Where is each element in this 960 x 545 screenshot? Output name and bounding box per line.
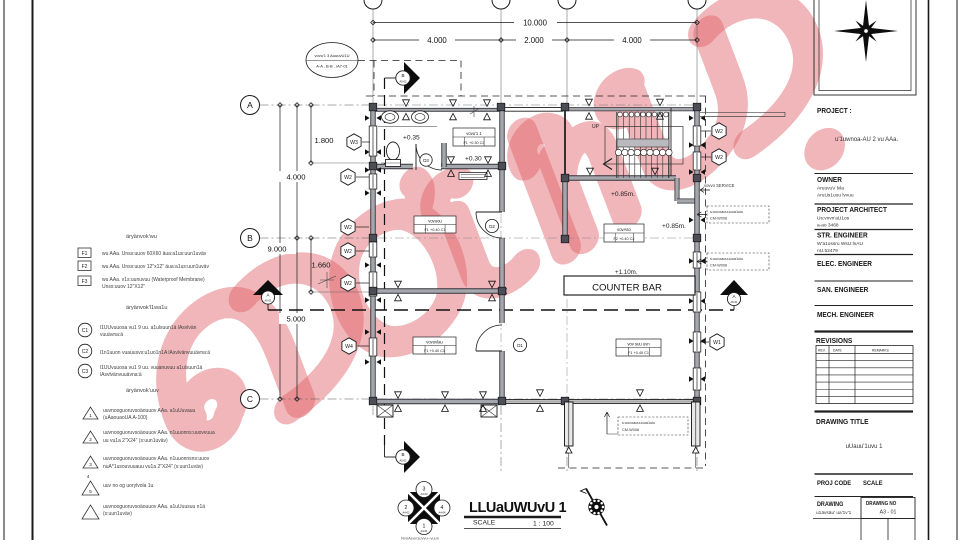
svg-text:nU.52479: nU.52479 — [817, 248, 838, 254]
svg-text:DRAWING NO: DRAWING NO — [866, 501, 896, 507]
svg-text:F1 +0.40 C1: F1 +0.40 C1 — [424, 228, 445, 232]
svg-text:PROJ CODE: PROJ CODE — [817, 480, 851, 487]
svg-text:AruuvuV lvla: AruuvuV lvla — [817, 186, 844, 192]
svg-text:C1: C1 — [82, 328, 89, 334]
svg-text:W4: W4 — [345, 344, 353, 350]
svg-text:CM-W008: CM-W008 — [710, 264, 727, 268]
svg-text:A5-02: A5-02 — [400, 459, 407, 463]
svg-text:u'1uwnoa-AU 2 vu AAa.: u'1uwnoa-AU 2 vu AAa. — [835, 137, 899, 143]
svg-text:vovvo SERVICE: vovvo SERVICE — [704, 183, 735, 188]
svg-text:A4-02: A4-02 — [403, 511, 410, 515]
svg-text:+0.85m.: +0.85m. — [611, 191, 635, 198]
svg-text:+0.35: +0.35 — [403, 135, 420, 142]
svg-text:vov suu uvn: vov suu uvn — [627, 342, 650, 347]
svg-text:wu AAa. v1s:uunuvuu (Waterproo: wu AAa. v1s:uunuvuu (Waterproof Membrane… — [102, 277, 205, 283]
svg-text:F2: F2 — [82, 264, 88, 270]
svg-text:MECH. ENGINEER: MECH. ENGINEER — [817, 312, 874, 319]
svg-text:5.000: 5.000 — [286, 315, 305, 324]
svg-text:vovu'1 3 AuuuvU1U: vovu'1 3 AuuuvU1U — [314, 53, 349, 58]
svg-text:A4-03: A4-03 — [421, 492, 428, 496]
svg-text:2.000: 2.000 — [524, 36, 544, 45]
svg-text:äryänvok'wu: äryänvok'wu — [126, 234, 157, 240]
svg-text:uuvnooguoruvsoäouuov AAa. n1uu: uuvnooguoruvsoäouuov AAa. n1uuonnsns:uuo… — [103, 456, 210, 462]
svg-text:REMARKS: REMARKS — [872, 349, 890, 353]
svg-text:wu AAa. Unss:uuov 12"x12" äua:: wu AAa. Unss:uuov 12"x12" äua:a1us:uun1u… — [102, 264, 209, 270]
svg-text:W'a1ossru WsU:lnAU: W'a1ossru WsU:lnAU — [817, 241, 863, 247]
svg-text:AruUs1uou lvvuu: AruUs1uou lvvuu — [817, 193, 854, 199]
svg-text:A5-01: A5-01 — [265, 299, 272, 303]
svg-text:OWNER: OWNER — [817, 177, 842, 184]
svg-text:F2 +0.40 C2: F2 +0.40 C2 — [613, 237, 634, 241]
svg-text:wu AAa. Unss:uuov 60X60 äua:a1: wu AAa. Unss:uuov 60X60 äua:a1us:uun1uvä… — [102, 251, 207, 257]
svg-text:SCALE: SCALE — [863, 480, 883, 487]
svg-text:COUNTER BAR: COUNTER BAR — [592, 283, 662, 294]
svg-text:C3: C3 — [82, 369, 89, 375]
svg-text:9.000: 9.000 — [267, 245, 286, 254]
svg-text:1.660: 1.660 — [311, 261, 330, 270]
svg-text:4: 4 — [87, 474, 90, 479]
svg-text:F3: F3 — [82, 279, 88, 285]
svg-text:s:uuvoauuuuua1ulu: s:uuvoauuuuua1ulu — [710, 210, 743, 214]
svg-text:W2: W2 — [344, 281, 352, 287]
svg-text:1 : 100: 1 : 100 — [533, 521, 554, 528]
svg-text:(uAaouaoUA A-100): (uAaouaoUA A-100) — [103, 415, 148, 421]
svg-text:W2: W2 — [715, 155, 723, 161]
svg-text:2: 2 — [89, 437, 92, 442]
svg-text:vovuou: vovuou — [428, 219, 442, 224]
svg-text:W3: W3 — [350, 140, 358, 146]
svg-text:3: 3 — [89, 462, 92, 467]
svg-text:A4-01: A4-01 — [421, 529, 428, 533]
svg-text:B: B — [401, 452, 404, 457]
svg-text:+0.30: +0.30 — [465, 156, 482, 163]
svg-text:STR. ENGINEER: STR. ENGINEER — [817, 232, 868, 239]
svg-text:A4-04: A4-04 — [439, 511, 446, 515]
svg-text:5: 5 — [89, 489, 92, 494]
svg-text:1: 1 — [423, 523, 426, 529]
svg-text:A5-02: A5-02 — [400, 80, 407, 84]
svg-text:A5-01: A5-01 — [731, 300, 738, 304]
svg-text:2: 2 — [405, 505, 408, 511]
svg-text:SAN. ENGINEER: SAN. ENGINEER — [817, 287, 868, 294]
svg-text:uuv no og uorylvola 1u: uuv no og uorylvola 1u — [103, 483, 154, 489]
svg-text:s:uuvoauuuuua1ulu: s:uuvoauuuuua1ulu — [622, 421, 655, 425]
svg-text:l1UUvuuosa vu1 9 uu. vuuanuvuu: l1UUvuuosa vu1 9 uu. vuuanuvuu a1ulsuun1… — [100, 365, 203, 371]
svg-text:+1.10m.: +1.10m. — [615, 269, 638, 276]
svg-text:W2: W2 — [344, 249, 352, 255]
svg-text:1.800: 1.800 — [314, 136, 333, 145]
svg-text:4: 4 — [441, 505, 444, 511]
svg-text:uuvnooguoruvsoäouuov AAa. n1uu: uuvnooguoruvsoäouuov AAa. n1uuonns:uuovv… — [103, 430, 215, 436]
svg-text:A: A — [247, 100, 253, 110]
svg-text:uUauu'1uvu 1: uUauu'1uvu 1 — [846, 444, 884, 450]
svg-text:NvnAsuv1uvvu--vuun: NvnAsuv1uvvu--vuun — [401, 536, 439, 541]
svg-text:SCALE: SCALE — [473, 520, 496, 527]
svg-text:4.000: 4.000 — [286, 173, 305, 182]
svg-text:uu vu1a 2"X24" (s:uun1uväv): uu vu1a 2"X24" (s:uun1uväv) — [103, 438, 168, 444]
svg-text:DRAWING TITLE: DRAWING TITLE — [816, 418, 869, 426]
svg-text:D2: D2 — [489, 224, 495, 229]
svg-text:(s:uun1uväv): (s:uun1uväv) — [103, 511, 132, 517]
svg-text:D1: D1 — [517, 343, 523, 348]
svg-text:u1ävsäu' ua'1v'1: u1ävsäu' ua'1v'1 — [816, 510, 852, 516]
svg-text:W2: W2 — [344, 175, 352, 181]
svg-text:C: C — [247, 394, 253, 404]
svg-text:4.000: 4.000 — [427, 36, 447, 45]
svg-text:A-A , B-B , /A7-01: A-A , B-B , /A7-01 — [316, 64, 348, 69]
svg-text:nuA*1usouvuuauu vu1a 2"X24" (s: nuA*1usouvuuauu vu1a 2"X24" (s:uun1uväv) — [103, 464, 203, 470]
svg-text:vovu'1 1: vovu'1 1 — [466, 131, 482, 136]
svg-text:CM-W008: CM-W008 — [710, 217, 727, 221]
svg-text:10.000: 10.000 — [523, 19, 548, 28]
svg-text:l1n1uuon vuauusvs:u1uo1n1A lAs: l1n1uuon vuauusvs:u1uo1n1A lAsvlvänvuuäv… — [100, 350, 210, 356]
svg-text:W2: W2 — [344, 225, 352, 231]
svg-text:D3: D3 — [423, 158, 429, 163]
svg-text:l1UUvuuosa vu1 9 uu. a1ulsuun1: l1UUvuuosa vu1 9 uu. a1ulsuun1ä lAsvlvän — [100, 325, 197, 331]
svg-text:PROJECT :: PROJECT : — [817, 108, 852, 115]
svg-text:vovuvlau: vovuvlau — [426, 340, 443, 345]
svg-text:W2: W2 — [715, 129, 723, 135]
svg-text:B: B — [401, 73, 404, 78]
svg-text:Us:vnvn'aU1os: Us:vnvn'aU1os — [817, 216, 850, 222]
svg-text:B: B — [247, 233, 253, 243]
svg-text:W1: W1 — [713, 340, 721, 346]
svg-text:äryänvok'uuv: äryänvok'uuv — [126, 388, 159, 394]
svg-text:A3 - 01: A3 - 01 — [880, 510, 897, 516]
svg-text:F1 +0.40 C1: F1 +0.40 C1 — [628, 351, 649, 355]
svg-text:uuvnooguoruvsoäouuov AAa. a1uU: uuvnooguoruvsoäouuov AAa. a1uUuvauu — [103, 408, 196, 414]
svg-text:Unss:uuov 12"X12": Unss:uuov 12"X12" — [102, 284, 145, 290]
svg-text:+0.85m.: +0.85m. — [662, 223, 686, 230]
svg-text:REVISIONS: REVISIONS — [816, 337, 853, 345]
svg-text:ELEC. ENGINEER: ELEC. ENGINEER — [817, 261, 872, 268]
svg-text:lAsvlvänvuuävna:ä: lAsvlvänvuuävna:ä — [100, 372, 142, 378]
svg-text:1: 1 — [89, 413, 92, 418]
svg-text:DRAWING: DRAWING — [817, 502, 844, 508]
svg-text:PROJECT ARCHITECT: PROJECT ARCHITECT — [817, 207, 888, 214]
svg-text:C2: C2 — [82, 349, 89, 355]
svg-text:LLUaUWUvU 1: LLUaUWUvU 1 — [469, 500, 566, 516]
svg-text:REV.: REV. — [818, 349, 826, 353]
svg-text:CM-W008: CM-W008 — [622, 428, 639, 432]
svg-text:4.000: 4.000 — [622, 36, 642, 45]
svg-text:a-ao 3468: a-ao 3468 — [817, 223, 839, 229]
svg-text:F1 +0.40 C1: F1 +0.40 C1 — [424, 349, 445, 353]
svg-text:3: 3 — [423, 486, 426, 492]
svg-text:äryänvok'l1wa1u: äryänvok'l1wa1u — [126, 305, 168, 311]
svg-text:F1 +0.30 C2: F1 +0.30 C2 — [463, 141, 484, 145]
svg-text:s:uuvoauuuuua1ulu: s:uuvoauuuuua1ulu — [710, 257, 743, 261]
svg-text:UP: UP — [592, 124, 600, 130]
svg-text:uuvnooguoruvsoäouuov AAa. a1uU: uuvnooguoruvsoäouuov AAa. a1uUuusuu n1ä — [103, 504, 205, 510]
svg-text:F1: F1 — [82, 251, 88, 257]
svg-text:DATE: DATE — [833, 349, 843, 353]
svg-text:vuuävna:ä: vuuävna:ä — [100, 332, 123, 338]
svg-text:vovAso: vovAso — [617, 227, 631, 232]
